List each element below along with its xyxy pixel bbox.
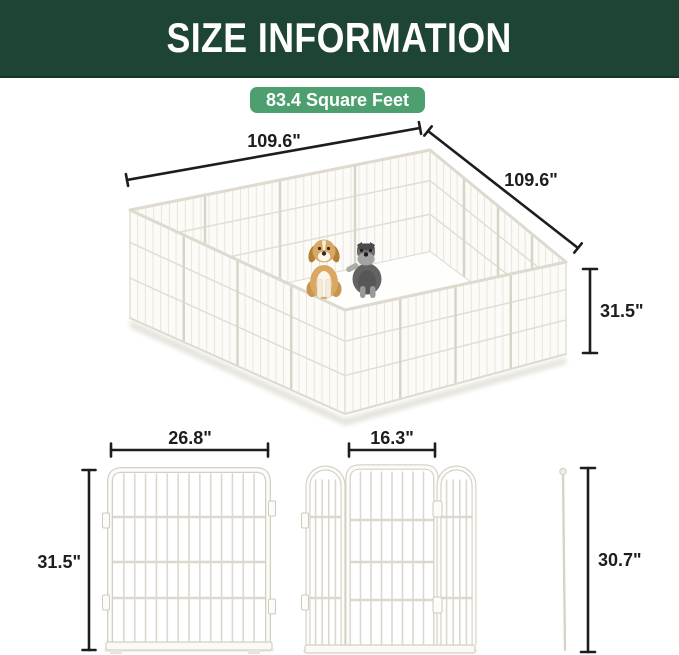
pole-illustration: 30.7": [560, 468, 642, 652]
pen-height-dimension-label: 31.5": [600, 301, 644, 321]
panel-height-dimension: 31.5": [37, 470, 95, 650]
panel-height-dimension-label: 31.5": [37, 552, 81, 572]
door-grid: [310, 472, 472, 645]
pen-walls: [130, 150, 566, 414]
pole-height-dimension: 30.7": [581, 468, 642, 652]
size-diagram: 109.6" 109.6" 31.5": [0, 0, 679, 655]
panel-width-dimension: 26.8": [111, 428, 268, 457]
panel-illustration: 26.8" 31.5": [37, 428, 275, 654]
panel-grid: [113, 474, 265, 642]
pen-illustration: 109.6" 109.6" 31.5": [126, 122, 644, 426]
pen-depth-dimension-label: 109.6": [504, 170, 558, 190]
door-width-dimension-label: 16.3": [370, 428, 414, 448]
panel-width-dimension-label: 26.8": [168, 428, 212, 448]
door-width-dimension: 16.3": [349, 428, 435, 457]
pen-height-dimension: 31.5": [583, 269, 644, 353]
pen-width-dimension-label: 109.6": [247, 131, 301, 151]
pole-height-dimension-label: 30.7": [598, 550, 642, 570]
door-illustration: 16.3": [302, 428, 478, 653]
